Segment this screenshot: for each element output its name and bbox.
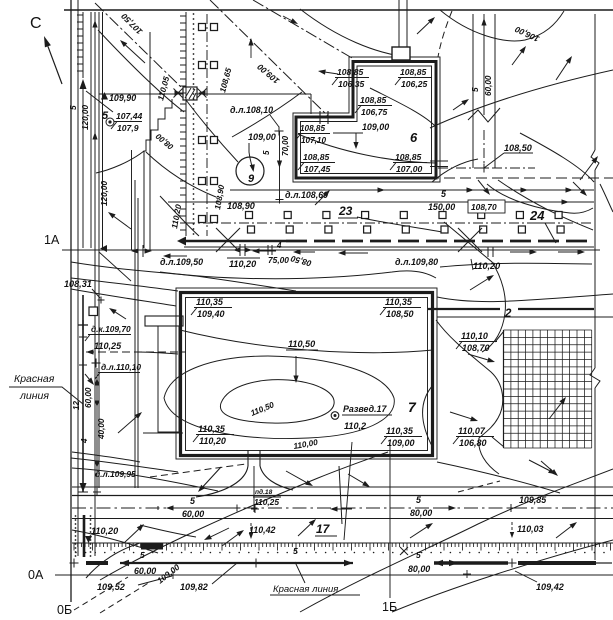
svg-text:108,85: 108,85: [303, 152, 330, 162]
svg-text:108,85: 108,85: [337, 67, 364, 77]
svg-text:д.л.108,10: д.л.108,10: [230, 105, 273, 115]
svg-text:6: 6: [410, 130, 418, 145]
svg-text:120,00: 120,00: [100, 181, 109, 206]
svg-text:60,00: 60,00: [484, 75, 493, 96]
svg-text:107,9: 107,9: [117, 123, 139, 133]
svg-text:60,00: 60,00: [182, 509, 204, 519]
svg-text:Красная линия: Красная линия: [273, 584, 338, 595]
svg-text:109,40: 109,40: [197, 309, 225, 319]
svg-text:110,20: 110,20: [199, 436, 226, 446]
svg-text:106,75: 106,75: [361, 107, 388, 117]
svg-text:5: 5: [471, 87, 480, 92]
svg-text:Красная: Красная: [14, 373, 55, 385]
svg-text:110,35: 110,35: [385, 297, 413, 307]
svg-text:109,00: 109,00: [248, 132, 276, 142]
svg-text:106,80: 106,80: [459, 438, 487, 448]
svg-text:110,35: 110,35: [198, 424, 226, 434]
svg-text:0Б: 0Б: [57, 603, 72, 617]
svg-text:17: 17: [316, 522, 331, 536]
svg-text:109,90: 109,90: [109, 93, 136, 103]
svg-text:0А: 0А: [28, 568, 44, 582]
svg-text:110,2: 110,2: [344, 421, 366, 431]
svg-text:60,00: 60,00: [84, 387, 93, 408]
svg-text:д.к.109,70: д.к.109,70: [91, 324, 131, 334]
svg-text:70,00: 70,00: [281, 135, 290, 156]
svg-text:109,82: 109,82: [180, 582, 208, 592]
svg-text:110,20: 110,20: [473, 261, 500, 271]
svg-text:110,50: 110,50: [288, 339, 315, 349]
svg-text:д.л.109,80: д.л.109,80: [395, 257, 438, 267]
svg-text:108,85: 108,85: [300, 124, 325, 133]
svg-text:С: С: [30, 15, 42, 32]
svg-text:110,25: 110,25: [94, 341, 122, 351]
svg-text:120,00: 120,00: [81, 105, 90, 130]
svg-text:110,10: 110,10: [461, 331, 488, 341]
svg-text:75,00: 75,00: [268, 255, 289, 265]
svg-text:60,00: 60,00: [134, 566, 156, 576]
svg-text:24: 24: [529, 208, 545, 223]
svg-text:108,70: 108,70: [462, 343, 490, 353]
svg-text:5: 5: [293, 546, 298, 556]
svg-text:д.л.109,95: д.л.109,95: [95, 469, 136, 479]
svg-text:д.л.109,50: д.л.109,50: [160, 257, 203, 267]
svg-text:1А: 1А: [44, 233, 60, 247]
svg-text:107,44: 107,44: [116, 111, 143, 121]
svg-text:110,07: 110,07: [458, 426, 486, 436]
svg-text:5: 5: [69, 105, 78, 110]
svg-text:107,10: 107,10: [301, 136, 326, 145]
svg-text:пд.18: пд.18: [255, 488, 273, 496]
svg-text:106,35: 106,35: [338, 79, 365, 89]
svg-text:109,42: 109,42: [536, 582, 564, 592]
svg-text:80,00: 80,00: [410, 508, 432, 518]
svg-text:40,00: 40,00: [97, 418, 106, 440]
svg-text:9: 9: [248, 173, 255, 185]
svg-text:108,50: 108,50: [504, 143, 532, 153]
svg-text:5: 5: [416, 550, 421, 560]
svg-text:12: 12: [72, 401, 81, 410]
svg-text:108,85: 108,85: [360, 95, 387, 105]
svg-text:линия: линия: [19, 390, 49, 402]
svg-text:110,35: 110,35: [196, 297, 224, 307]
svg-text:110,03: 110,03: [517, 524, 544, 534]
svg-text:107,45: 107,45: [304, 164, 331, 174]
svg-text:2: 2: [504, 308, 512, 320]
svg-text:23: 23: [338, 204, 353, 218]
svg-text:109,00: 109,00: [387, 438, 415, 448]
svg-text:5: 5: [102, 110, 109, 122]
svg-text:110,20: 110,20: [229, 259, 256, 269]
svg-text:110,20: 110,20: [91, 526, 118, 536]
svg-text:108,50: 108,50: [386, 309, 414, 319]
svg-text:Развед.17: Развед.17: [343, 404, 387, 414]
svg-text:108,85: 108,85: [395, 152, 422, 162]
svg-text:109,00: 109,00: [362, 122, 389, 132]
svg-text:108,31: 108,31: [64, 279, 92, 289]
svg-text:109,85: 109,85: [519, 495, 547, 505]
svg-text:107,00: 107,00: [396, 164, 423, 174]
svg-text:1Б: 1Б: [382, 600, 397, 614]
svg-text:7: 7: [408, 399, 417, 415]
svg-text:5: 5: [262, 150, 271, 155]
svg-text:106,25: 106,25: [401, 79, 428, 89]
svg-text:5: 5: [140, 550, 145, 560]
svg-text:110,35: 110,35: [386, 426, 414, 436]
svg-text:108,85: 108,85: [400, 67, 427, 77]
svg-text:110,25: 110,25: [254, 497, 279, 507]
svg-text:80,00: 80,00: [408, 564, 430, 574]
svg-text:108,70: 108,70: [471, 202, 497, 212]
svg-text:4: 4: [80, 438, 89, 444]
svg-text:150,00: 150,00: [428, 202, 455, 212]
svg-text:4: 4: [276, 241, 282, 250]
